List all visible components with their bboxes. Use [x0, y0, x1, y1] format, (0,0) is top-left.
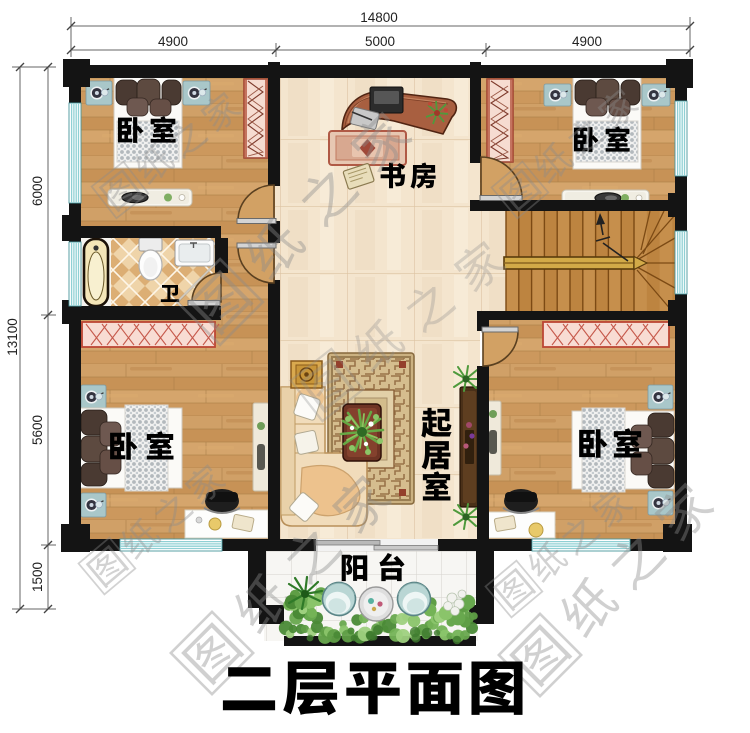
- svg-text:14800: 14800: [360, 10, 398, 25]
- svg-text:6000: 6000: [30, 176, 45, 206]
- svg-text:4900: 4900: [158, 34, 188, 49]
- svg-text:1500: 1500: [30, 562, 45, 592]
- svg-text:5000: 5000: [365, 34, 395, 49]
- svg-text:5600: 5600: [30, 415, 45, 445]
- svg-text:4900: 4900: [572, 34, 602, 49]
- svg-text:13100: 13100: [5, 318, 20, 356]
